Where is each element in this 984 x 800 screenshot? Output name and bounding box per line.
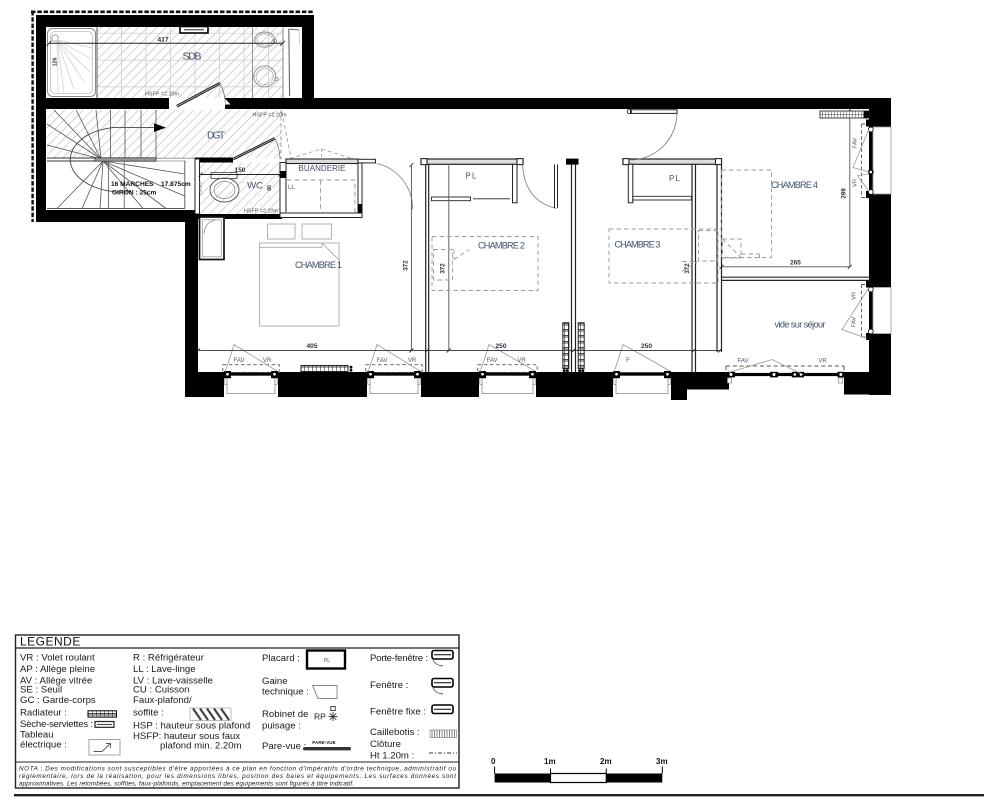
svg-text:FAV: FAV xyxy=(234,358,245,364)
svg-text:réglementaire, lors de la réal: réglementaire, lors de la réalisation, p… xyxy=(19,773,456,780)
svg-text:250: 250 xyxy=(641,343,652,350)
svg-text:VR: VR xyxy=(408,358,417,364)
svg-text:FAV: FAV xyxy=(377,358,388,364)
svg-text:LL : Lave-linge: LL : Lave-linge xyxy=(133,664,196,675)
svg-text:0: 0 xyxy=(491,757,496,766)
svg-text:LL: LL xyxy=(288,185,295,191)
svg-text:CHAMBRE 4: CHAMBRE 4 xyxy=(771,180,818,190)
svg-text:CHAMBRE 3: CHAMBRE 3 xyxy=(615,240,661,250)
svg-text:Radiateur :: Radiateur : xyxy=(20,708,67,719)
svg-text:80: 80 xyxy=(267,185,273,191)
svg-text:Sèche-serviettes :: Sèche-serviettes : xyxy=(20,719,93,730)
svg-text:2m: 2m xyxy=(600,757,612,766)
svg-text:NOTA : Des modifications sont: NOTA : Des modifications sont susceptibl… xyxy=(19,766,456,773)
svg-text:VR: VR xyxy=(818,359,827,365)
svg-text:HSFP =2.20m: HSFP =2.20m xyxy=(244,209,278,215)
svg-text:FAV: FAV xyxy=(738,359,749,365)
svg-text:vide sur séjour: vide sur séjour xyxy=(775,320,826,330)
svg-text:Placard :: Placard : xyxy=(262,653,300,664)
svg-text:puisage :: puisage : xyxy=(262,721,301,732)
svg-text:1m: 1m xyxy=(544,757,556,766)
svg-text:150: 150 xyxy=(235,167,246,174)
svg-text:265: 265 xyxy=(790,260,801,267)
svg-text:Caillebotis :: Caillebotis : xyxy=(370,727,420,738)
svg-text:PL: PL xyxy=(669,174,681,183)
svg-text:Fenêtre fixe :: Fenêtre fixe : xyxy=(370,707,426,718)
svg-text:126: 126 xyxy=(53,58,59,67)
svg-text:F: F xyxy=(626,358,630,364)
svg-text:VR: VR xyxy=(263,358,272,364)
svg-text:PARE-VUE: PARE-VUE xyxy=(312,740,335,745)
svg-text:405: 405 xyxy=(306,343,317,350)
svg-text:372: 372 xyxy=(439,263,446,274)
svg-text:372: 372 xyxy=(403,260,410,271)
svg-text:WC: WC xyxy=(247,181,263,192)
svg-text:LEGENDE: LEGENDE xyxy=(20,635,81,649)
svg-text:3m: 3m xyxy=(656,757,668,766)
svg-text:CHAMBRE 1: CHAMBRE 1 xyxy=(295,260,342,270)
svg-text:FAV: FAV xyxy=(487,358,498,364)
svg-text:VR: VR xyxy=(852,292,858,300)
svg-text:Gaine: Gaine xyxy=(262,676,288,687)
svg-text:GIRON : 25cm: GIRON : 25cm xyxy=(112,190,156,197)
svg-text:372: 372 xyxy=(684,263,691,274)
svg-text:VR : Volet roulant: VR : Volet roulant xyxy=(20,653,95,664)
svg-text:PL: PL xyxy=(324,658,330,664)
svg-text:HSFP =2.20m: HSFP =2.20m xyxy=(145,92,179,98)
svg-text:299: 299 xyxy=(840,188,847,199)
svg-text:SE : Seuil: SE : Seuil xyxy=(20,685,62,696)
svg-text:17.875cm: 17.875cm xyxy=(161,181,191,188)
svg-text:VR: VR xyxy=(517,358,526,364)
svg-text:RP: RP xyxy=(314,712,326,722)
svg-text:250: 250 xyxy=(495,343,506,350)
svg-text:HSFP =2.20m: HSFP =2.20m xyxy=(253,113,287,119)
svg-text:DGT: DGT xyxy=(207,131,225,142)
svg-text:Pare-vue :: Pare-vue : xyxy=(262,741,306,752)
svg-text:plafond min. 2.20m: plafond min. 2.20m xyxy=(160,741,242,752)
svg-text:FAV: FAV xyxy=(852,317,858,328)
svg-text:Clôture: Clôture xyxy=(370,739,401,750)
svg-text:Faux-plafond/: Faux-plafond/ xyxy=(133,695,192,706)
svg-text:soffite :: soffite : xyxy=(133,708,164,719)
svg-text:BUANDERIE: BUANDERIE xyxy=(299,164,346,173)
svg-text:Robinet de: Robinet de xyxy=(262,709,308,720)
svg-text:PL: PL xyxy=(466,172,478,181)
svg-text:HSP : hauteur sous plafond: HSP : hauteur sous plafond xyxy=(133,721,250,732)
svg-text:R : Réfrigérateur: R : Réfrigérateur xyxy=(133,653,205,664)
svg-text:VR: VR xyxy=(853,179,859,187)
svg-text:technique :: technique : xyxy=(262,687,309,698)
svg-text:SDB: SDB xyxy=(183,51,202,63)
svg-text:CU : Cuisson: CU : Cuisson xyxy=(133,685,190,696)
svg-text:Porte-fenêtre :: Porte-fenêtre : xyxy=(370,653,428,664)
svg-text:approximatives. Les retombées,: approximatives. Les retombées, soffites,… xyxy=(19,781,354,788)
svg-text:Lavabo: Lavabo xyxy=(198,180,203,194)
svg-text:CHAMBRE 2: CHAMBRE 2 xyxy=(478,241,525,251)
svg-text:Fenêtre :: Fenêtre : xyxy=(370,680,408,691)
svg-text:électrique :: électrique : xyxy=(20,740,67,751)
svg-text:AP : Allège pleine: AP : Allège pleine xyxy=(20,664,95,675)
svg-text:GC : Garde-corps: GC : Garde-corps xyxy=(20,695,96,706)
svg-text:FAV: FAV xyxy=(853,138,859,149)
svg-text:16 MARCHES: 16 MARCHES xyxy=(111,181,154,188)
svg-text:417: 417 xyxy=(157,37,169,44)
svg-text:Ht 1.20m :: Ht 1.20m : xyxy=(370,751,414,762)
